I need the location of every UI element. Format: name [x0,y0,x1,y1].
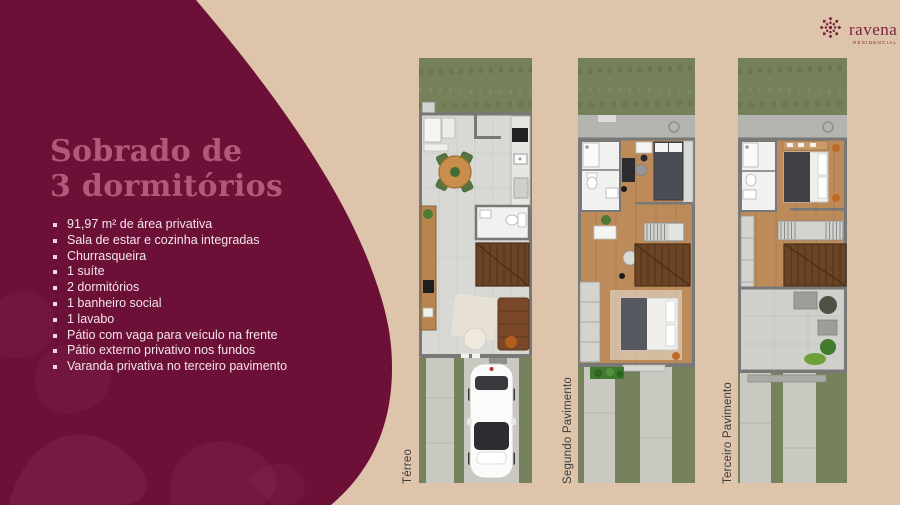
backyard-grass [738,58,847,115]
floorplan-label-segundo: Segundo Pavimento [562,377,574,484]
toilet [587,177,597,189]
feature-item: Churrasqueira [50,249,365,265]
bullet-marker [53,318,57,322]
counter [442,118,455,138]
plant [601,215,611,225]
suite-bathroom [741,141,776,211]
toilet [506,215,518,225]
desk-unit [622,158,635,182]
feature-item: Pátio com vaga para veículo na frente [50,328,365,344]
feature-item: Varanda privativa no terceiro pavimento [50,359,365,375]
floorplan-segundo-drawing [578,58,695,483]
bullet-marker [53,223,57,227]
stairs [784,244,846,286]
chair [636,165,647,176]
floorplan-label-terceiro: Terceiro Pavimento [722,382,734,484]
ground-floor-building [421,114,531,359]
logo-text: ravena RESIDENCIAL [849,14,897,45]
sink [480,210,491,218]
lavabo [476,206,529,239]
car-icon [467,364,516,478]
lamp [832,144,840,152]
page-title: Sobrado de 3 dormitórios [50,134,365,204]
floorplan-segundo-pavimento [578,58,695,483]
floorplan-terreo-drawing [418,58,533,483]
grill [423,280,434,293]
dining-table [435,151,473,192]
front-driveway [738,373,847,483]
lamp [832,194,840,202]
floorplan-label-terreo: Térreo [402,449,414,484]
closet [644,223,684,241]
floorplan-terceiro-drawing [738,58,847,483]
plant [423,209,433,219]
sink [743,190,756,199]
second-floor-building [580,139,694,367]
desk [636,142,652,153]
bullet-marker [53,270,57,274]
bullet-marker [53,302,57,306]
floorplan-terreo [418,58,533,483]
feature-item: 1 suíte [50,264,365,280]
bullet-marker [53,239,57,243]
bullet-marker [53,365,57,369]
round-rug [464,328,486,350]
cooktop [512,128,528,142]
bullet-marker [53,334,57,338]
rear-slab [738,115,847,139]
feature-item: 1 lavabo [50,312,365,328]
rosette-logo-icon [817,14,844,41]
ac-unit [422,102,435,113]
feature-item: 91,97 m² de área privativa [50,217,365,233]
side-table [505,336,517,348]
sink [606,188,618,198]
plant-2 [804,353,826,365]
backyard-grass [419,58,532,115]
bullet-marker [53,286,57,290]
backyard-grass [578,58,695,115]
rear-slab [578,115,695,139]
kitchen [511,116,530,212]
feature-list: 91,97 m² de área privativa Sala de estar… [50,217,365,375]
varanda [740,288,846,371]
logo-wordmark: ravena [849,21,897,38]
chair [818,320,837,335]
balcony-edge [748,375,826,382]
bullet-marker [53,255,57,259]
feature-item: Pátio externo privativo nos fundos [50,343,365,359]
plant [820,339,836,355]
lamp [672,352,680,360]
churrasqueira-bench [421,206,436,330]
round-table [819,296,837,314]
floorplan-terceiro-pavimento [738,58,847,483]
third-floor-building [740,139,847,373]
feature-item: 1 banheiro social [50,296,365,312]
logo-subtitle: RESIDENCIAL [849,40,897,45]
front-driveway [578,365,695,483]
laundry-appliance [424,118,441,142]
stairs [476,243,529,286]
feature-item: 2 dormitórios [50,280,365,296]
bullet-marker [53,349,57,353]
feature-item: Sala de estar e cozinha integradas [50,233,365,249]
bedroom-2 [580,282,682,362]
slide: Sobrado de 3 dormitórios 91,97 m² de áre… [0,0,900,505]
armchair [794,292,817,309]
toilet [746,174,756,186]
panel-content: Sobrado de 3 dormitórios 91,97 m² de áre… [50,134,365,375]
doormat [489,358,507,364]
bathroom [581,141,620,211]
title-line-1: Sobrado de [50,134,242,169]
balcony-sill [623,365,665,371]
title-line-2: 3 dormitórios [50,169,283,204]
closet [778,221,843,240]
desk-2 [594,226,616,239]
front-driveway [419,358,532,483]
stairs [635,244,690,286]
logo: ravena RESIDENCIAL [817,14,897,45]
